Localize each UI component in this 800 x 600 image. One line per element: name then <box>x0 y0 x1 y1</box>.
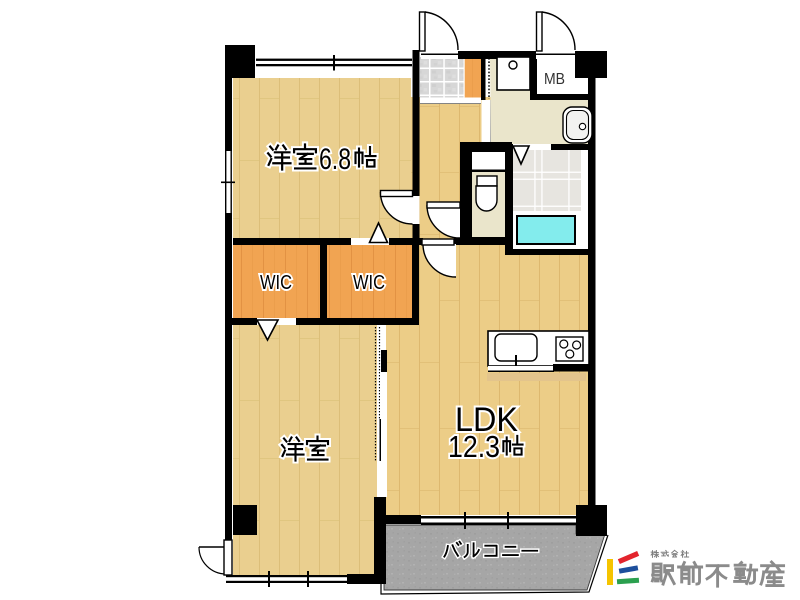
svg-text:WIC: WIC <box>353 271 385 294</box>
svg-text:12.3: 12.3 <box>448 429 500 464</box>
svg-text:6.8: 6.8 <box>319 143 351 176</box>
svg-text:WIC: WIC <box>260 271 292 294</box>
svg-text:MB: MB <box>544 71 565 88</box>
